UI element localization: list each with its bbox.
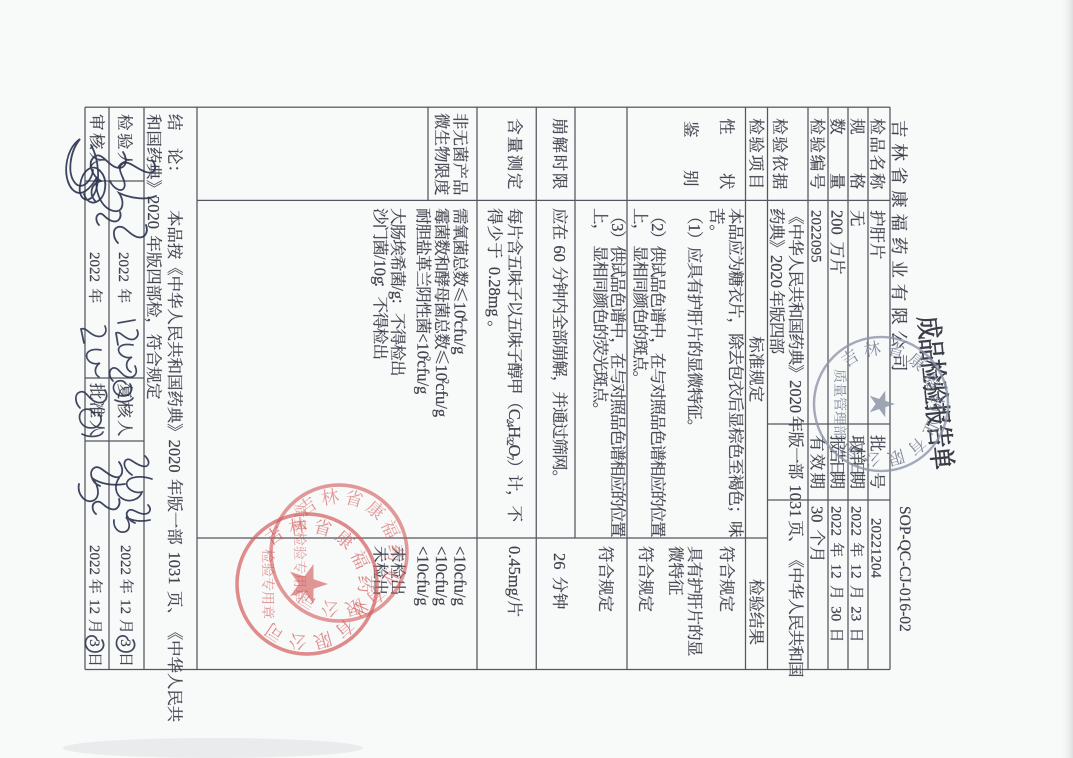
svg-text:SOP-QC-CJ-016-02: SOP-QC-CJ-016-02 xyxy=(896,506,913,632)
svg-text:1: 1 xyxy=(685,224,704,232)
svg-text:0.45mg/: 0.45mg/ xyxy=(505,546,524,601)
svg-text:cfu/g: cfu/g xyxy=(414,360,433,394)
svg-text:O: O xyxy=(505,445,524,457)
svg-text:12: 12 xyxy=(848,564,864,579)
svg-text:30: 30 xyxy=(828,606,844,621)
svg-text:2022: 2022 xyxy=(115,252,131,282)
svg-text:2: 2 xyxy=(648,223,667,231)
svg-text:2022: 2022 xyxy=(86,252,102,282)
svg-text:3: 3 xyxy=(608,223,627,231)
svg-text:12: 12 xyxy=(117,599,133,614)
svg-text:2020: 2020 xyxy=(767,255,786,288)
svg-text:<10cfu/g: <10cfu/g xyxy=(432,546,451,606)
svg-text:1031: 1031 xyxy=(786,485,805,518)
svg-text:60: 60 xyxy=(550,245,569,262)
svg-text:<10: <10 xyxy=(414,333,433,359)
svg-text:200: 200 xyxy=(828,210,847,235)
svg-text:2020: 2020 xyxy=(786,380,805,413)
svg-text:H: H xyxy=(505,426,524,438)
svg-text:2020: 2020 xyxy=(144,196,163,229)
svg-text:cfu/g: cfu/g xyxy=(451,321,470,355)
svg-text:23: 23 xyxy=(848,606,864,621)
svg-text:<10cfu/g: <10cfu/g xyxy=(451,546,470,606)
svg-text:26: 26 xyxy=(550,553,569,570)
svg-text:cfu/g: cfu/g xyxy=(432,383,451,417)
svg-text:/g: /g xyxy=(388,286,407,299)
svg-text:10: 10 xyxy=(432,364,451,381)
svg-text:10: 10 xyxy=(451,302,470,319)
svg-text:/10g: /10g xyxy=(371,255,390,284)
svg-text:20221204: 20221204 xyxy=(868,518,884,579)
svg-text:12: 12 xyxy=(86,599,102,614)
svg-text:12: 12 xyxy=(828,564,844,579)
svg-text:2020: 2020 xyxy=(165,440,184,473)
svg-text:7: 7 xyxy=(504,455,515,460)
svg-text:C: C xyxy=(505,409,524,420)
svg-text:30: 30 xyxy=(808,506,827,523)
svg-text:2022: 2022 xyxy=(848,506,864,536)
svg-text:3: 3 xyxy=(117,639,133,647)
svg-text:<10cfu/g: <10cfu/g xyxy=(414,546,433,606)
svg-text:2022095: 2022095 xyxy=(808,210,824,263)
svg-text:3: 3 xyxy=(86,639,102,647)
svg-text:2022: 2022 xyxy=(828,506,844,536)
svg-text:2022: 2022 xyxy=(117,545,133,575)
svg-text:0.28mg: 0.28mg xyxy=(485,267,504,317)
svg-text:2022: 2022 xyxy=(86,545,102,575)
svg-text:1031: 1031 xyxy=(165,551,184,584)
